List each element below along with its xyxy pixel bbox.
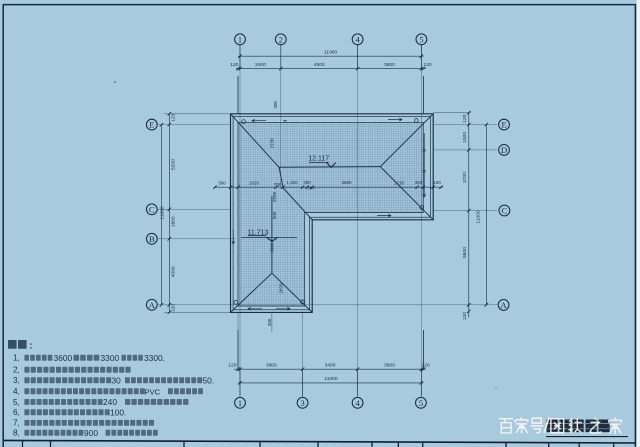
svg-text:2730: 2730 [394, 180, 405, 185]
svg-text:3080: 3080 [270, 242, 275, 253]
svg-text:3800: 3800 [384, 62, 395, 68]
svg-text:120: 120 [423, 62, 431, 68]
svg-text:100: 100 [433, 180, 441, 185]
svg-text:3680: 3680 [341, 180, 352, 185]
svg-text:5: 5 [419, 34, 424, 44]
svg-text:300: 300 [303, 180, 311, 185]
svg-text:2500: 2500 [272, 191, 277, 202]
svg-text:1: 1 [238, 398, 242, 408]
svg-text:A: A [149, 300, 156, 310]
svg-text:120: 120 [422, 362, 430, 368]
svg-text:50.: 50. [203, 375, 215, 385]
svg-text:2: 2 [279, 34, 283, 44]
svg-text:8‚: 8‚ [13, 429, 20, 438]
svg-text:700: 700 [274, 182, 282, 187]
svg-text:120: 120 [228, 362, 236, 368]
svg-text:120: 120 [170, 113, 176, 121]
svg-text:120: 120 [462, 114, 468, 122]
svg-text:300: 300 [218, 180, 226, 185]
svg-text:11000: 11000 [476, 210, 482, 224]
svg-text:4000: 4000 [170, 266, 176, 277]
svg-text:300: 300 [273, 101, 278, 109]
svg-text:240: 240 [103, 397, 117, 407]
svg-text:2400: 2400 [255, 62, 266, 68]
svg-text:4800: 4800 [314, 62, 325, 68]
svg-text:3800: 3800 [384, 362, 395, 368]
svg-text:11000: 11000 [159, 206, 165, 220]
svg-text:PVC: PVC [145, 387, 161, 396]
svg-text:30: 30 [112, 375, 122, 385]
svg-text:3300.: 3300. [144, 353, 165, 363]
svg-text:B: B [149, 234, 155, 244]
svg-text:2020: 2020 [249, 180, 260, 185]
svg-text:1‚: 1‚ [13, 354, 20, 363]
svg-text:1500: 1500 [462, 132, 468, 143]
svg-text:3: 3 [300, 398, 305, 408]
svg-text:3800: 3800 [266, 362, 277, 368]
svg-text:120: 120 [230, 62, 238, 68]
svg-text:2‚: 2‚ [13, 366, 20, 375]
svg-text:4: 4 [355, 398, 360, 408]
svg-text:1,320: 1,320 [286, 180, 298, 185]
svg-text:900: 900 [84, 428, 98, 438]
svg-text:100.: 100. [110, 407, 126, 417]
svg-text:120: 120 [170, 304, 176, 312]
svg-text:300: 300 [267, 318, 272, 326]
svg-text:6‚: 6‚ [13, 408, 20, 417]
svg-text:5: 5 [419, 398, 424, 408]
svg-text:2020: 2020 [279, 283, 284, 294]
svg-text:11000: 11000 [324, 50, 338, 56]
svg-text:E: E [149, 120, 154, 130]
svg-text:1: 1 [238, 34, 242, 44]
svg-text:4‚: 4‚ [13, 387, 20, 396]
svg-text:2730: 2730 [270, 138, 275, 149]
svg-text:120: 120 [462, 312, 468, 320]
svg-text:A: A [500, 300, 507, 310]
svg-text:1800: 1800 [170, 216, 176, 227]
svg-text:3300: 3300 [101, 353, 120, 363]
svg-text:3400: 3400 [325, 362, 336, 368]
svg-text:E: E [501, 120, 506, 130]
svg-text:C: C [501, 206, 507, 216]
svg-text:300: 300 [307, 186, 315, 191]
svg-text:7‚: 7‚ [13, 419, 20, 428]
svg-text:D: D [501, 145, 507, 155]
svg-text:600: 600 [272, 211, 277, 219]
svg-text:5‚: 5‚ [13, 398, 20, 407]
svg-text:360: 360 [415, 180, 423, 185]
svg-text:3‚: 3‚ [13, 376, 20, 385]
svg-text:11000: 11000 [324, 376, 338, 382]
svg-text:12.117: 12.117 [308, 156, 329, 163]
svg-text:3600: 3600 [54, 353, 73, 363]
svg-text:5800: 5800 [462, 247, 468, 258]
svg-text:C: C [149, 204, 155, 214]
svg-text:5200: 5200 [170, 159, 176, 170]
svg-text::: : [30, 341, 33, 351]
svg-text:4: 4 [355, 34, 360, 44]
svg-text:3700: 3700 [462, 172, 468, 183]
